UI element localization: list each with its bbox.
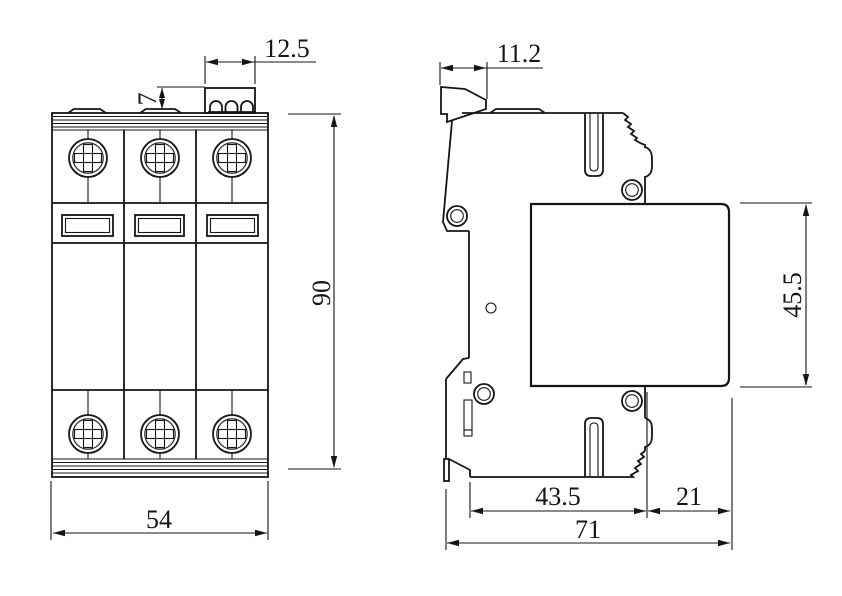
screw-top-1 [69, 139, 107, 177]
dim-overall-depth-label: 71 [575, 515, 601, 544]
side-view: 11.2 45.5 43.5 21 71 [440, 39, 812, 550]
screw-bottom-1 [69, 415, 107, 453]
side-screw-rear-bottom [622, 391, 642, 411]
arrowhead [634, 508, 646, 514]
bottom-slot-outer [585, 418, 603, 477]
dim-body-height-label: 90 [307, 280, 336, 306]
terminal-screw-bumps [208, 101, 256, 112]
clip-slider-notch [464, 372, 471, 383]
indicator-windows [62, 215, 258, 236]
arrowhead [803, 204, 809, 216]
arrowhead [242, 59, 254, 65]
plug-in-module [531, 204, 729, 386]
top-slot-inner [590, 114, 598, 171]
clip-slider-step [464, 430, 472, 436]
arrowhead [53, 530, 65, 536]
dimension-drawing-svg: 12.5 7 90 54 [0, 0, 842, 596]
front-view: 12.5 7 90 54 [51, 34, 341, 540]
front-body [52, 88, 268, 477]
pole-seam-lines [88, 130, 232, 459]
front-body-outline [52, 113, 268, 477]
pilot-hole [486, 303, 496, 313]
dim-clip-offset-label: 11.2 [497, 39, 542, 68]
dim-terminal-height-label: 7 [133, 93, 162, 106]
arrowhead [206, 59, 218, 65]
side-screw-front-top [447, 206, 467, 226]
screw-bottom-2 [141, 415, 179, 453]
dim-body-width-label: 54 [146, 505, 172, 534]
drawing-canvas: 12.5 7 90 54 [0, 0, 842, 596]
arrowhead [331, 115, 337, 127]
screw-top-2 [141, 139, 179, 177]
screw-bottom-3 [213, 415, 251, 453]
arrowhead [441, 65, 453, 71]
arrowhead [447, 540, 459, 546]
arrowhead [255, 530, 267, 536]
arrowhead [718, 508, 730, 514]
arrowhead [803, 374, 809, 386]
base-right-edge-bottom [623, 386, 652, 477]
front-section-lines [52, 203, 268, 390]
side-screw-front-bottom [474, 384, 494, 404]
arrowhead [471, 508, 483, 514]
arrowhead [474, 65, 486, 71]
front-top-slats [52, 117, 268, 131]
base-front-face [443, 121, 469, 358]
side-body [441, 87, 729, 481]
clip-slider [464, 400, 472, 430]
top-slot-outer [585, 114, 603, 176]
din-clip-foot [444, 459, 449, 481]
dim-module-height-label: 45.5 [778, 272, 807, 318]
arrowhead [718, 540, 730, 546]
bottom-slot-inner [590, 423, 598, 477]
arrowhead [648, 508, 660, 514]
base-right-edge-top [623, 113, 652, 204]
dim-base-depth-label: 43.5 [535, 482, 581, 511]
dim-terminal-width-label: 12.5 [264, 34, 310, 63]
terminal-lug [441, 87, 486, 122]
dim-21-lines [648, 398, 732, 550]
front-bottom-slats [52, 459, 268, 473]
side-screw-rear-top [622, 180, 642, 200]
arrowhead [331, 456, 337, 468]
dim-module-overhang-label: 21 [676, 482, 702, 511]
screw-top-3 [213, 139, 251, 177]
